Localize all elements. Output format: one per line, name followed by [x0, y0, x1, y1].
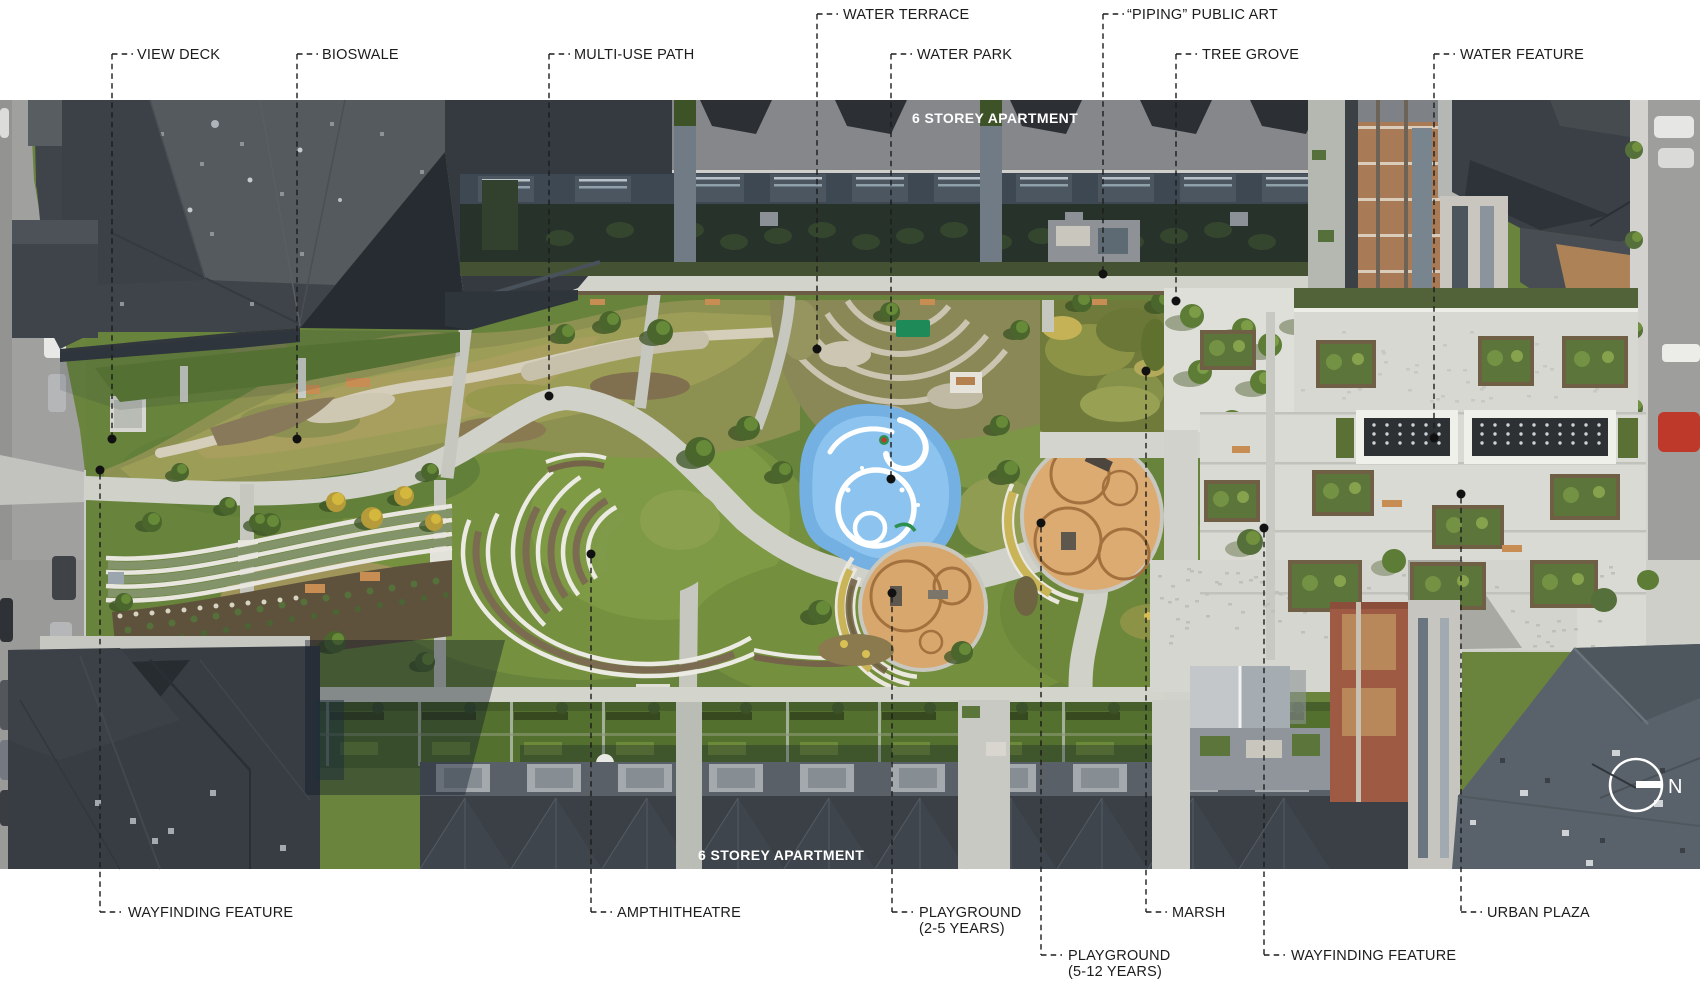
- svg-text:TREE GROVE: TREE GROVE: [1202, 47, 1299, 63]
- svg-text:6 STOREY APARTMENT: 6 STOREY APARTMENT: [912, 110, 1078, 126]
- svg-text:(2-5 YEARS): (2-5 YEARS): [919, 921, 1005, 937]
- svg-text:WATER TERRACE: WATER TERRACE: [843, 7, 970, 23]
- svg-text:N: N: [1668, 776, 1682, 798]
- svg-text:(5-12 YEARS): (5-12 YEARS): [1068, 964, 1162, 980]
- svg-text:PLAYGROUND: PLAYGROUND: [1068, 948, 1170, 964]
- svg-text:MULTI-USE PATH: MULTI-USE PATH: [574, 47, 694, 63]
- svg-text:6 STOREY APARTMENT: 6 STOREY APARTMENT: [698, 847, 864, 863]
- svg-text:AMPTHITHEATRE: AMPTHITHEATRE: [617, 905, 741, 921]
- svg-text:WAYFINDING FEATURE: WAYFINDING FEATURE: [128, 905, 293, 921]
- svg-text:MARSH: MARSH: [1172, 905, 1225, 921]
- svg-text:WATER FEATURE: WATER FEATURE: [1460, 47, 1584, 63]
- svg-text:URBAN PLAZA: URBAN PLAZA: [1487, 905, 1590, 921]
- svg-text:VIEW DECK: VIEW DECK: [137, 47, 220, 63]
- svg-text:BIOSWALE: BIOSWALE: [322, 47, 399, 63]
- svg-text:WAYFINDING FEATURE: WAYFINDING FEATURE: [1291, 948, 1456, 964]
- svg-text:“PIPING” PUBLIC ART: “PIPING” PUBLIC ART: [1127, 7, 1278, 23]
- svg-text:WATER PARK: WATER PARK: [917, 47, 1012, 63]
- svg-text:PLAYGROUND: PLAYGROUND: [919, 905, 1021, 921]
